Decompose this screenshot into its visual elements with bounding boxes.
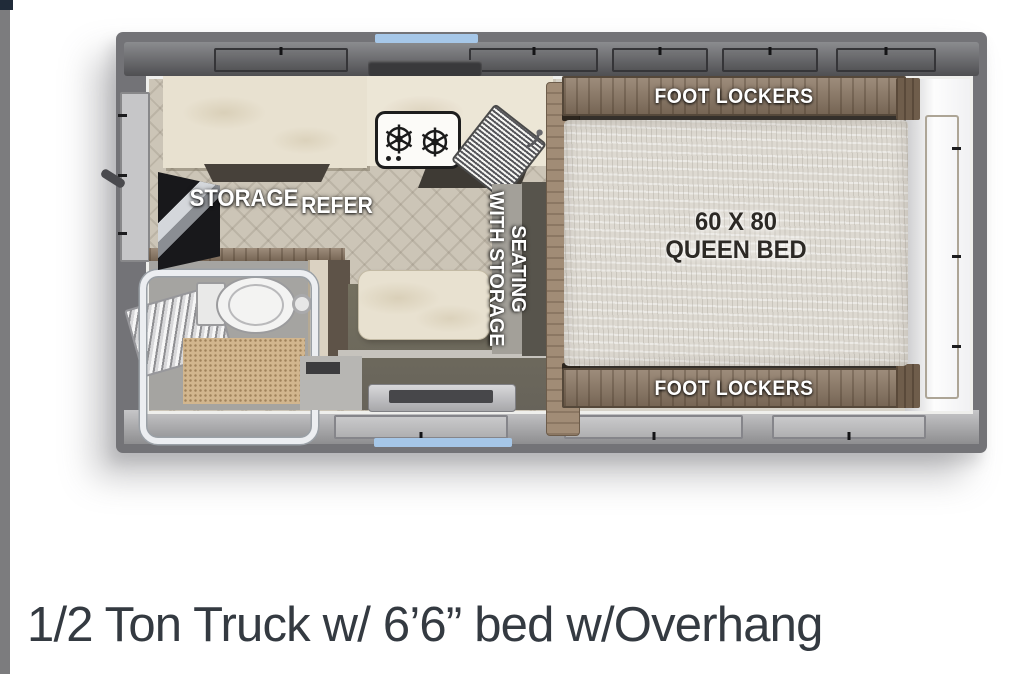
bed-corner-cabinet bbox=[896, 78, 920, 120]
seating-label-line2: WITH STORAGE bbox=[485, 181, 507, 357]
bed-corner-cabinet bbox=[896, 364, 920, 408]
seating-with-storage-label: SEATING WITH STORAGE bbox=[483, 181, 529, 357]
top-wall bbox=[124, 42, 979, 76]
foot-lockers-bottom-label: FOOT LOCKERS bbox=[578, 370, 891, 407]
stove-icon bbox=[375, 111, 461, 169]
dinette-table bbox=[358, 270, 490, 340]
window-icon bbox=[564, 415, 743, 439]
faucet-icon bbox=[524, 128, 546, 150]
stove-burner-icon bbox=[383, 123, 415, 155]
foot-lockers-top-label: FOOT LOCKERS bbox=[578, 78, 891, 115]
cabinet-opening bbox=[204, 164, 330, 182]
top-left-corner-swatch bbox=[0, 0, 13, 10]
shower-enclosure-icon bbox=[140, 270, 318, 444]
bed-type-label: QUEEN BED bbox=[573, 236, 900, 264]
queen-bed-label: 60 X 80 QUEEN BED bbox=[573, 208, 900, 264]
range-hood-icon bbox=[368, 60, 482, 76]
bed-size-label: 60 X 80 bbox=[573, 208, 900, 236]
kitchen-counter bbox=[163, 76, 367, 168]
window-icon bbox=[772, 415, 926, 439]
floorplan-caption: 1/2 Ton Truck w/ 6’6” bed w/Overhang bbox=[27, 597, 1007, 653]
entry-step-handle-icon bbox=[368, 384, 516, 412]
window-icon bbox=[334, 415, 508, 439]
roof-vent-top bbox=[375, 34, 478, 43]
left-edge-strip bbox=[0, 0, 10, 674]
stove-knob-icon bbox=[386, 156, 391, 161]
floorplan-page: STORAGE REFER SEATING WITH STORAGE FOOT … bbox=[0, 0, 1020, 674]
stove-knob-icon bbox=[396, 156, 401, 161]
right-wall-window-icon bbox=[925, 115, 959, 399]
entry-mat bbox=[306, 362, 340, 374]
window-icon bbox=[836, 48, 936, 72]
entry-door-bottom bbox=[374, 438, 512, 447]
seating-label-line1: SEATING bbox=[507, 181, 529, 357]
window-icon bbox=[722, 48, 818, 72]
window-icon bbox=[469, 48, 598, 72]
foot-lockers-top: FOOT LOCKERS bbox=[562, 76, 906, 116]
left-wall-window-icon bbox=[120, 92, 150, 262]
camper-floorplan-image: STORAGE REFER SEATING WITH STORAGE FOOT … bbox=[116, 32, 987, 453]
refer-label: REFER bbox=[283, 192, 392, 219]
window-icon bbox=[214, 48, 348, 72]
foot-lockers-bottom: FOOT LOCKERS bbox=[562, 368, 906, 408]
stove-burner-icon bbox=[419, 126, 451, 158]
window-icon bbox=[612, 48, 708, 72]
